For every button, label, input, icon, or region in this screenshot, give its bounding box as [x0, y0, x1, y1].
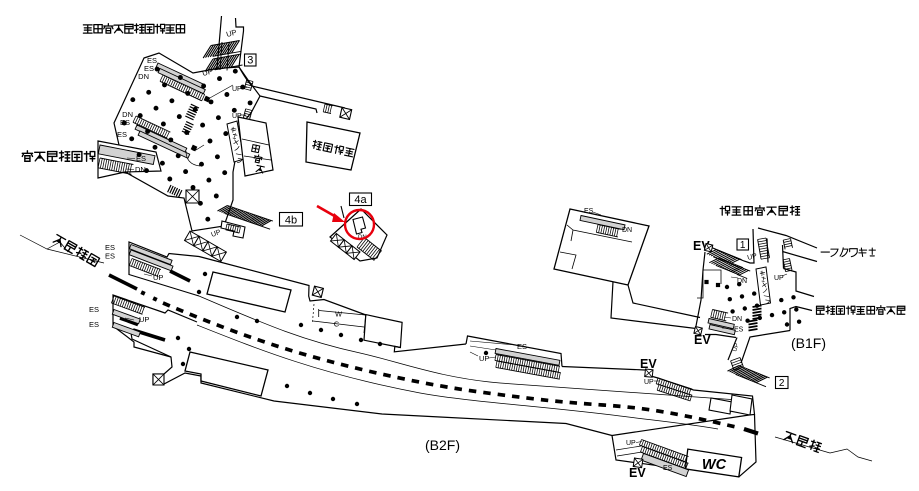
svg-text:4a: 4a [354, 194, 367, 206]
svg-text:ES: ES [517, 342, 527, 351]
svg-text:1: 1 [740, 240, 746, 251]
svg-text:WC: WC [702, 457, 727, 473]
svg-text:DN: DN [732, 316, 742, 323]
svg-text:UP: UP [479, 354, 489, 363]
svg-text:(B2F): (B2F) [425, 437, 460, 453]
svg-text:UP: UP [626, 440, 636, 447]
svg-text:ES: ES [105, 252, 115, 261]
svg-text:3: 3 [247, 55, 253, 67]
svg-text:EV: EV [694, 333, 711, 347]
svg-text:ES: ES [584, 208, 594, 215]
svg-text:2: 2 [779, 378, 785, 389]
svg-text:C: C [334, 320, 340, 329]
svg-text:UP: UP [644, 379, 654, 386]
svg-text:EV: EV [629, 466, 646, 480]
svg-text:UP: UP [153, 273, 163, 282]
svg-text:ES: ES [117, 130, 127, 139]
svg-text:DN: DN [622, 227, 632, 234]
svg-text:ES: ES [89, 305, 99, 314]
svg-text:4b: 4b [285, 215, 297, 227]
svg-text:W: W [335, 310, 343, 319]
svg-text:UP: UP [139, 315, 149, 324]
svg-text:ES: ES [89, 320, 99, 329]
svg-text:DN: DN [135, 165, 146, 174]
svg-text:ES: ES [734, 327, 744, 334]
svg-text:(B1F): (B1F) [791, 335, 826, 351]
svg-text:DN: DN [138, 72, 149, 81]
svg-text:ES: ES [663, 465, 673, 472]
